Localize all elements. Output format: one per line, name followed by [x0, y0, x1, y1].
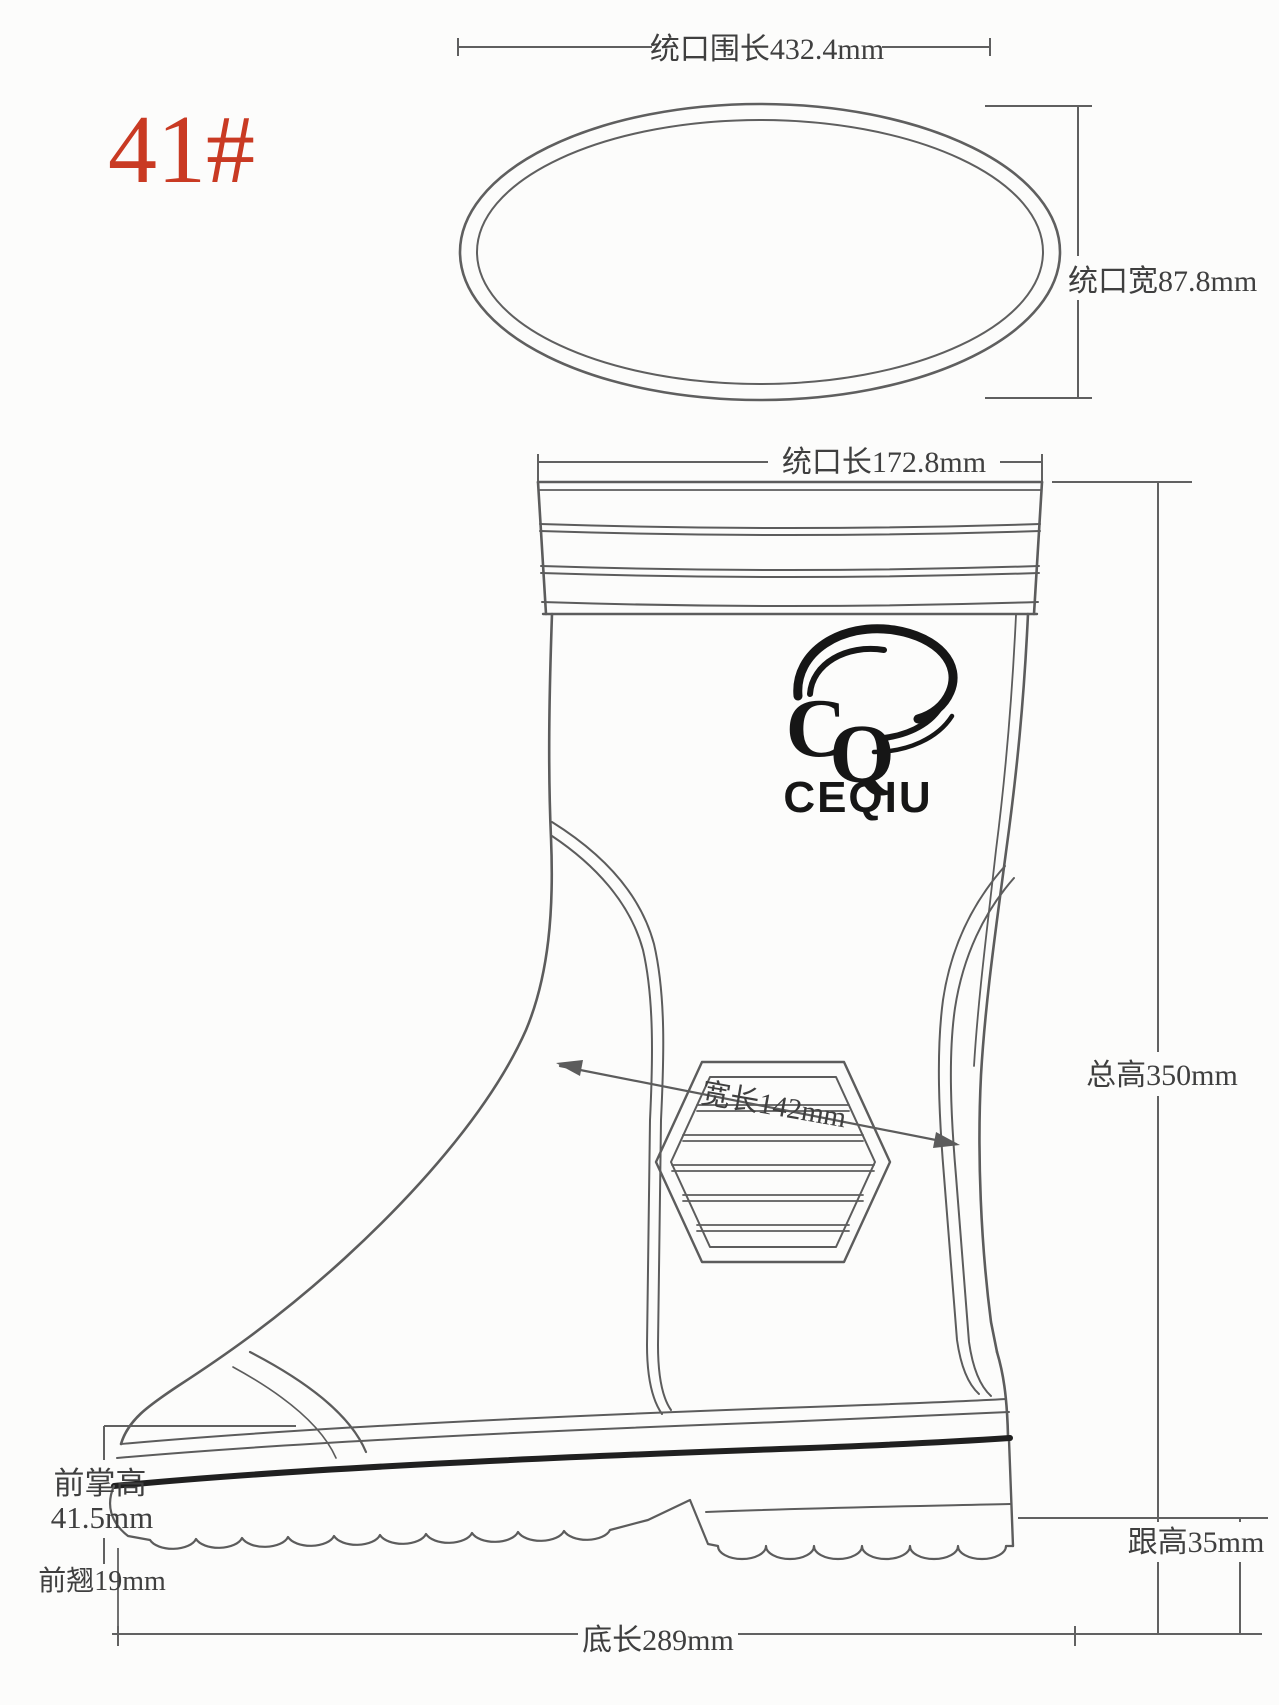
collar-band-line [541, 573, 1039, 577]
brand-name: CEQIU [783, 773, 932, 822]
toe-cap-seam [250, 1352, 366, 1452]
forefoot-height-value: 41.5mm [51, 1500, 153, 1535]
boot-back-outline [979, 614, 1028, 1352]
foxing-top-line [121, 1399, 1006, 1444]
heel-seat-line [706, 1504, 1010, 1512]
boot-side-view: C Q CEQIU [110, 482, 1042, 1559]
boot-technical-drawing: 41# [0, 0, 1279, 1705]
side-view-dimensions [104, 454, 1268, 1646]
heel-side-edge [1009, 1440, 1013, 1546]
vamp-front-seam [552, 822, 671, 1410]
sole [110, 1399, 1013, 1559]
collar-band-line [541, 566, 1039, 570]
collar-band-line [540, 531, 1040, 535]
outsole-top-line [114, 1438, 1010, 1486]
opening-length-label: 统口长172.8mm [782, 446, 986, 479]
dimension-labels: 统口围长432.4mm 统口宽87.8mm 统口长172.8mm 总高350mm… [38, 28, 1276, 1662]
forefoot-height-label: 前掌高 [54, 1466, 147, 1501]
vamp-front-seam-inner [552, 836, 662, 1414]
arrowhead [933, 1132, 960, 1148]
collar-left-edge [538, 482, 546, 614]
boot-collar [538, 482, 1042, 614]
width-dimension [985, 106, 1092, 398]
arrowhead [556, 1060, 583, 1076]
heel-back-edge [997, 1352, 1008, 1436]
midsole-line [117, 1412, 1009, 1458]
toe-cap-seam-inner [233, 1367, 336, 1458]
circumference-label: 统口围长432.4mm [650, 33, 884, 66]
toe-spring-label: 前翘19mm [38, 1565, 166, 1597]
opening-inner-ellipse [477, 120, 1043, 384]
sole-length-label: 底长289mm [582, 1624, 734, 1657]
heel-height-label: 跟高35mm [1128, 1526, 1265, 1559]
heel-counter-seam-inner [951, 878, 1014, 1396]
boot-front-outline [121, 614, 552, 1444]
opening-width-label: 统口宽87.8mm [1068, 265, 1257, 298]
top-view [458, 38, 1092, 400]
collar-band-line [540, 524, 1040, 528]
width-length-label: 宽长142mm [699, 1076, 850, 1134]
collar-right-edge [1034, 482, 1042, 614]
boot-back-binding-line [974, 615, 1016, 1066]
boot-spec-sheet: 41# [0, 0, 1279, 1705]
brand-logo: C Q CEQIU [783, 629, 953, 822]
total-height-label: 总高350mm [1086, 1059, 1238, 1092]
opening-outer-ellipse [460, 104, 1060, 400]
size-label: 41# [108, 96, 255, 204]
outsole-lugged-bottom [110, 1486, 1013, 1559]
collar-bottom-ledge [542, 602, 1038, 606]
